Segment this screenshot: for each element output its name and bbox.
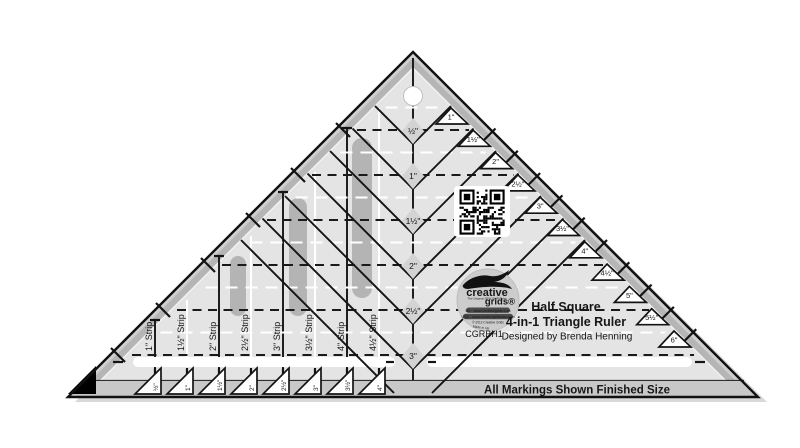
- qr-module: [483, 215, 485, 217]
- qr-module: [485, 222, 487, 224]
- qr-module: [485, 196, 487, 198]
- center-size-label: 2": [409, 261, 417, 271]
- qr-module: [481, 211, 483, 213]
- qr-module: [481, 233, 483, 235]
- ruler-canvas: 1" Strip1½" Strip2" Strip2½" Strip3" Str…: [0, 0, 800, 448]
- qr-module: [479, 220, 481, 222]
- qr-module: [483, 198, 485, 200]
- brand-copyright: © 2012 Creative Grids: [472, 321, 504, 325]
- qr-module: [498, 213, 500, 215]
- title-line2: 4-in-1 Triangle Ruler: [506, 315, 626, 329]
- qr-module: [496, 228, 498, 230]
- qr-module: [485, 209, 487, 211]
- qr-module: [466, 215, 468, 217]
- qr-module: [483, 200, 485, 202]
- qr-module: [472, 215, 474, 217]
- qr-module: [477, 209, 479, 211]
- qr-module: [470, 211, 472, 213]
- qr-module: [468, 213, 470, 215]
- qr-module: [479, 224, 481, 226]
- bottom-size-label: 3": [313, 384, 320, 391]
- qr-module: [492, 228, 494, 230]
- qr-module: [464, 213, 466, 215]
- qr-module: [477, 192, 479, 194]
- qr-module: [475, 211, 477, 213]
- qr-module: [472, 211, 474, 213]
- qr-module: [479, 200, 481, 202]
- qr-module: [498, 209, 500, 211]
- qr-module: [498, 228, 500, 230]
- qr-module: [483, 211, 485, 213]
- strip-label: 1" Strip: [144, 322, 154, 351]
- qr-module: [503, 224, 505, 226]
- qr-module: [494, 228, 496, 230]
- qr-module: [472, 207, 474, 209]
- qr-module: [479, 233, 481, 235]
- qr-module: [462, 207, 464, 209]
- qr-module: [494, 211, 496, 213]
- qr-module: [487, 217, 489, 219]
- qr-module: [483, 209, 485, 211]
- qr-module: [500, 209, 502, 211]
- qr-module: [468, 211, 470, 213]
- bottom-size-label: 3½": [344, 379, 352, 391]
- qr-module: [485, 194, 487, 196]
- qr-module: [481, 226, 483, 228]
- qr-module: [485, 226, 487, 228]
- corner-black-triangle: [68, 366, 96, 394]
- qr-code: [454, 186, 510, 237]
- qr-module: [498, 230, 500, 232]
- qr-module: [485, 211, 487, 213]
- qr-module: [492, 222, 494, 224]
- qr-module: [483, 202, 485, 204]
- qr-module: [494, 217, 496, 219]
- qr-module: [475, 207, 477, 209]
- qr-module: [496, 226, 498, 228]
- qr-module: [483, 222, 485, 224]
- hanging-hole: [404, 87, 423, 106]
- qr-module: [492, 217, 494, 219]
- qr-module: [477, 215, 479, 217]
- bottom-size-label: ½": [152, 383, 160, 391]
- qr-module: [479, 213, 481, 215]
- brand-tagline: The Original SEW SLIP Ruler: [467, 297, 506, 301]
- qr-module: [492, 215, 494, 217]
- center-size-label: 1½": [406, 216, 421, 226]
- bottom-size-label: 1½": [216, 379, 224, 391]
- strip-label: 1½" Strip: [176, 314, 186, 351]
- qr-module: [479, 207, 481, 209]
- qr-module: [481, 230, 483, 232]
- edge-size-label: 1": [448, 113, 455, 122]
- qr-module: [483, 196, 485, 198]
- qr-module: [494, 194, 500, 200]
- qr-module: [481, 202, 483, 204]
- qr-module: [503, 211, 505, 213]
- qr-module: [487, 209, 489, 211]
- qr-module: [487, 207, 489, 209]
- qr-module: [496, 233, 498, 235]
- qr-module: [485, 190, 487, 192]
- edge-size-label: 6": [671, 336, 678, 345]
- qr-module: [479, 211, 481, 213]
- strip-label: 3½" Strip: [304, 314, 314, 351]
- edge-size-label: 2": [492, 157, 499, 166]
- qr-module: [464, 209, 466, 211]
- bottom-size-label: 2½": [280, 379, 288, 391]
- strip-label: 2" Strip: [208, 322, 218, 351]
- edge-size-label: 4½": [601, 269, 614, 278]
- qr-module: [485, 215, 487, 217]
- qr-module: [466, 211, 468, 213]
- qr-module: [477, 196, 479, 198]
- qr-module: [470, 215, 472, 217]
- strip-label: 3" Strip: [272, 322, 282, 351]
- qr-module: [483, 217, 485, 219]
- title-line1: Half Square: [531, 300, 601, 314]
- center-size-label: ½": [408, 126, 418, 136]
- center-size-label: 3": [409, 351, 417, 361]
- qr-module: [477, 200, 479, 202]
- qr-module: [481, 196, 483, 198]
- qr-module: [477, 220, 479, 222]
- qr-module: [462, 213, 464, 215]
- qr-module: [500, 207, 502, 209]
- edge-size-label: 4": [581, 246, 588, 255]
- qr-module: [492, 207, 494, 209]
- edge-size-label: 3": [537, 202, 544, 211]
- qr-module: [487, 226, 489, 228]
- qr-module: [487, 230, 489, 232]
- edge-size-label: 3½": [556, 224, 569, 233]
- qr-module: [483, 230, 485, 232]
- qr-module: [490, 207, 492, 209]
- qr-module: [464, 194, 470, 200]
- qr-module: [496, 224, 498, 226]
- qr-module: [500, 224, 502, 226]
- qr-module: [503, 207, 505, 209]
- qr-module: [490, 215, 492, 217]
- qr-module: [464, 215, 466, 217]
- slot-bottom-left: [133, 357, 395, 367]
- qr-module: [492, 213, 494, 215]
- qr-module: [477, 233, 479, 235]
- qr-module: [466, 209, 468, 211]
- qr-module: [483, 220, 485, 222]
- qr-module: [498, 233, 500, 235]
- qr-module: [479, 228, 481, 230]
- center-size-label: 2½": [406, 306, 421, 316]
- qr-module: [494, 233, 496, 235]
- qr-module: [500, 217, 502, 219]
- qr-module: [485, 202, 487, 204]
- qr-module: [487, 211, 489, 213]
- qr-module: [496, 217, 498, 219]
- bottom-size-label: 4": [377, 384, 384, 391]
- edge-size-label: 2½": [511, 179, 524, 188]
- qr-module: [503, 222, 505, 224]
- qr-module: [492, 224, 494, 226]
- qr-module: [490, 217, 492, 219]
- designer-credit: Designed by Brenda Henning: [502, 332, 633, 343]
- qr-module: [477, 217, 479, 219]
- qr-module: [494, 224, 496, 226]
- qr-module: [460, 215, 462, 217]
- qr-module: [477, 202, 479, 204]
- qr-module: [472, 209, 474, 211]
- qr-module: [475, 209, 477, 211]
- brand-url-uk: UK - www.creativegrids.com: [466, 309, 511, 313]
- bottom-size-label: 1": [185, 384, 192, 391]
- strip-label: 2½" Strip: [240, 314, 250, 351]
- bottom-size-label: 2": [249, 384, 256, 391]
- edge-size-label: 5": [626, 291, 633, 300]
- qr-module: [483, 226, 485, 228]
- qr-module: [485, 198, 487, 200]
- qr-module: [498, 217, 500, 219]
- edge-size-label: 5½": [645, 313, 658, 322]
- edge-size-label: 1½": [467, 135, 480, 144]
- footer-note: All Markings Shown Finished Size: [484, 385, 670, 397]
- qr-module: [481, 220, 483, 222]
- qr-module: [498, 224, 500, 226]
- qr-module: [494, 230, 496, 232]
- qr-module: [500, 222, 502, 224]
- center-size-label: 1": [409, 171, 417, 181]
- ruler-product-image: 1" Strip1½" Strip2" Strip2½" Strip3" Str…: [0, 0, 800, 448]
- qr-module: [460, 207, 462, 209]
- model-number: CGRBH1: [465, 329, 503, 339]
- qr-module: [464, 224, 470, 230]
- qr-module: [485, 217, 487, 219]
- qr-module: [500, 213, 502, 215]
- qr-module: [503, 220, 505, 222]
- qr-module: [485, 220, 487, 222]
- qr-module: [477, 222, 479, 224]
